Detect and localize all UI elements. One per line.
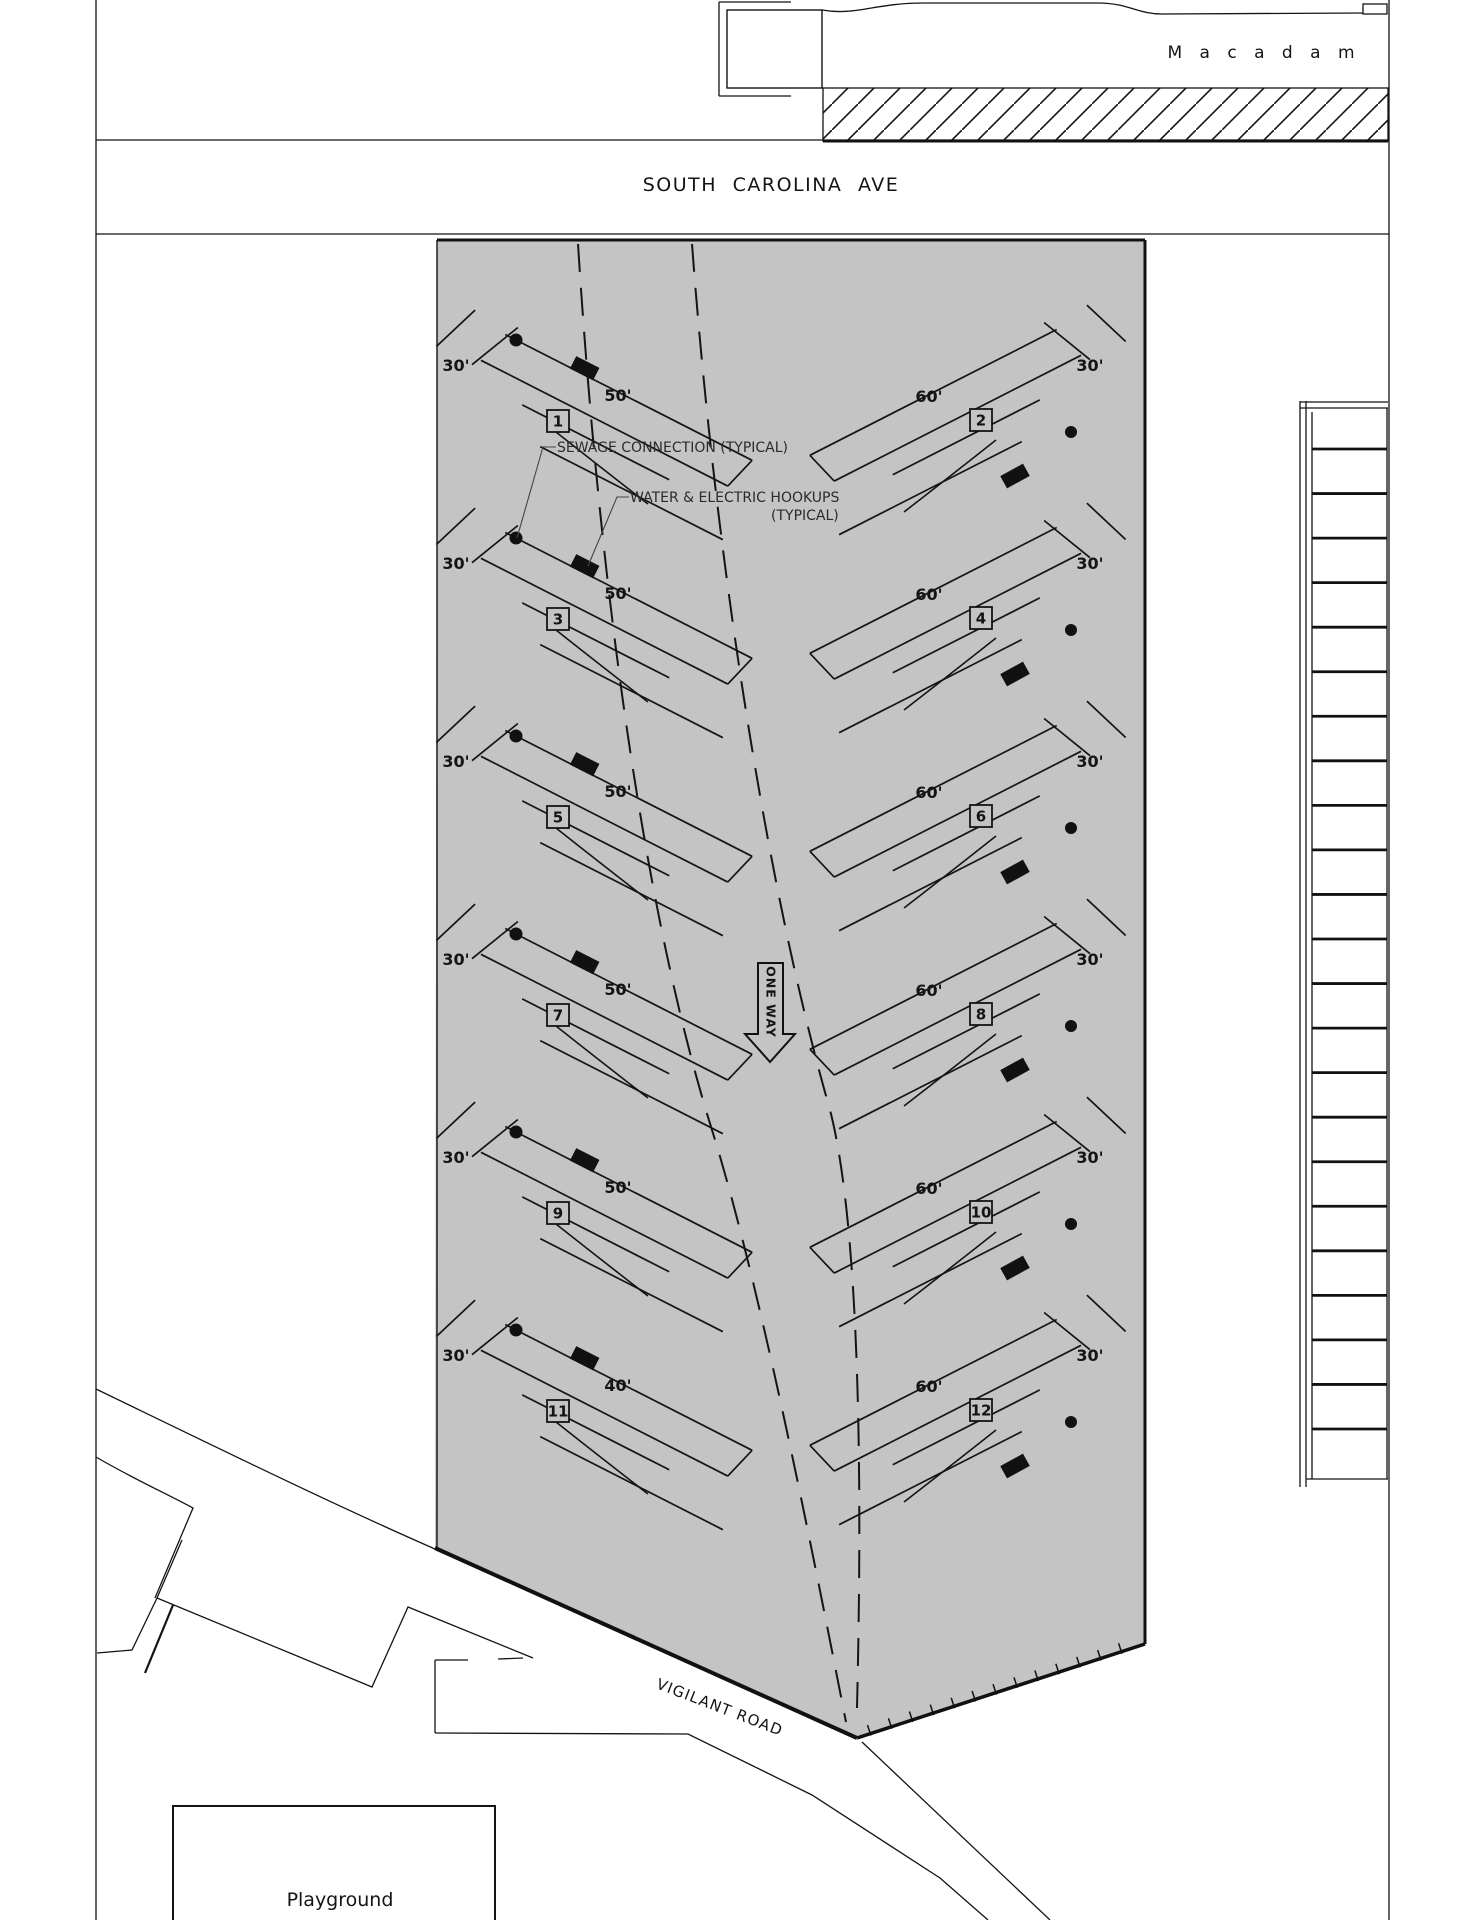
site-number: 8 [976,1006,986,1024]
site-number: 2 [976,412,986,430]
sewage-note: SEWAGE CONNECTION (TYPICAL) [557,440,788,456]
site-number: 12 [971,1402,992,1420]
sewage-connection-dot [1065,1218,1077,1230]
one-way-label: ONE WAY [764,966,779,1038]
macadam-pavement-hatch [823,88,1388,141]
macadam-north-edge [822,3,1363,14]
site-length-dimension: 60' [915,981,942,1000]
site-number: 5 [553,809,563,827]
site-width-dimension: 30' [1076,950,1103,969]
site-number: 1 [553,413,563,431]
site-width-dimension: 30' [1076,1148,1103,1167]
site-width-dimension: 30' [1076,356,1103,375]
sewage-connection-dot [1065,1020,1077,1032]
site-width-dimension: 30' [442,950,469,969]
site-width-dimension: 30' [442,1148,469,1167]
west-lot-line [97,1540,182,1653]
site-width-dimension: 30' [1076,752,1103,771]
south-carolina-ave-label: SOUTH CAROLINA AVE [643,174,900,196]
site-length-dimension: 60' [915,783,942,802]
site-number: 4 [976,610,986,628]
driveway-zigzag-line [157,1598,533,1687]
site-width-dimension: 30' [442,356,469,375]
path-curve-north [96,1389,435,1549]
pad-north-edge-b [498,1658,523,1659]
east-parking-stalls [1300,401,1388,1487]
macadam-corner-structure [1363,4,1387,14]
site-number: 10 [971,1204,992,1222]
stall-divider-lines [1312,449,1387,1429]
site-number: 9 [553,1205,563,1223]
site-length-dimension: 50' [604,782,631,801]
campground-area [435,240,1145,1738]
site-length-dimension: 60' [915,1179,942,1198]
site-width-dimension: 30' [442,1346,469,1365]
site-number: 3 [553,611,563,629]
site-length-dimension: 50' [604,980,631,999]
path-curve-south [96,1457,193,1598]
site-length-dimension: 40' [604,1376,631,1395]
hookup-note-line1: WATER & ELECTRIC HOOKUPS [630,490,839,506]
site-width-dimension: 30' [1076,554,1103,573]
vigilant-east-edge [862,1742,1050,1920]
north-building [719,2,822,96]
site-length-dimension: 60' [915,387,942,406]
site-width-dimension: 30' [442,752,469,771]
site-number: 11 [548,1403,569,1421]
sewage-connection-dot [1065,822,1077,834]
macadam-road: M a c a d a m [822,3,1388,141]
sewage-connection-dot [1065,624,1077,636]
macadam-label: M a c a d a m [1167,43,1360,63]
playground: Playground [173,1806,495,1920]
site-length-dimension: 50' [604,584,631,603]
site-width-dimension: 30' [1076,1346,1103,1365]
vigilant-south-edge [435,1733,988,1920]
campground-parcel [435,240,1145,1738]
hookup-note-line2: (TYPICAL) [771,508,839,524]
vigilant-road: VIGILANT ROAD [435,1675,1050,1920]
building-footprint [727,10,822,88]
site-length-dimension: 50' [604,1178,631,1197]
south-carolina-ave: SOUTH CAROLINA AVE [96,140,1389,234]
sewage-connection-dot [1065,1416,1077,1428]
site-length-dimension: 60' [915,585,942,604]
campground-site-plan: M a c a d a m SOUTH CAROLINA AVE 30'50'1… [0,0,1484,1920]
site-number: 7 [553,1007,563,1025]
sewage-connection-dot [1065,426,1077,438]
site-width-dimension: 30' [442,554,469,573]
site-length-dimension: 50' [604,386,631,405]
site-length-dimension: 60' [915,1377,942,1396]
site-number: 6 [976,808,986,826]
playground-label: Playground [287,1889,394,1911]
